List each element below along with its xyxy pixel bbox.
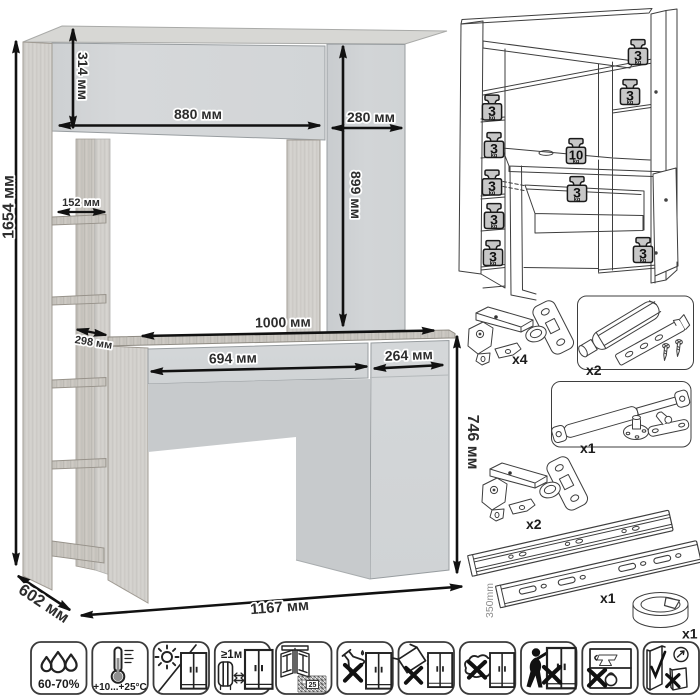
svg-text:1654 мм: 1654 мм <box>1 175 18 239</box>
svg-text:1000 мм: 1000 мм <box>255 314 311 331</box>
svg-text:kg: kg <box>640 258 646 264</box>
svg-text:x2: x2 <box>526 516 542 532</box>
svg-text:kg: kg <box>635 60 641 66</box>
svg-text:+10...+25°C: +10...+25°C <box>93 682 146 693</box>
svg-text:350mm: 350mm <box>484 583 496 618</box>
svg-text:694 мм: 694 мм <box>209 349 257 366</box>
svg-text:60-70%: 60-70% <box>38 677 80 691</box>
svg-text:746 мм: 746 мм <box>464 415 481 470</box>
svg-text:kg: kg <box>573 159 579 165</box>
svg-text:880 мм: 880 мм <box>174 106 222 122</box>
svg-text:602 мм: 602 мм <box>15 581 72 627</box>
svg-text:kg: kg <box>490 261 496 267</box>
svg-text:25: 25 <box>309 682 317 689</box>
svg-text:kg: kg <box>491 224 497 230</box>
svg-text:264 мм: 264 мм <box>385 346 433 364</box>
svg-text:x4: x4 <box>512 351 528 367</box>
svg-text:1167 мм: 1167 мм <box>250 597 310 618</box>
svg-text:280 мм: 280 мм <box>347 109 395 125</box>
svg-text:x2: x2 <box>586 362 602 378</box>
svg-text:x1: x1 <box>600 590 616 606</box>
svg-text:x1: x1 <box>682 626 698 642</box>
svg-text:kg: kg <box>574 197 580 203</box>
svg-text:314 мм: 314 мм <box>75 52 91 100</box>
svg-text:kg: kg <box>627 100 633 106</box>
svg-text:kg: kg <box>489 190 495 196</box>
svg-text:899 мм: 899 мм <box>348 171 364 219</box>
svg-text:kg: kg <box>489 115 495 121</box>
svg-text:x1: x1 <box>580 440 596 456</box>
svg-text:kg: kg <box>491 153 497 159</box>
svg-text:≥1м: ≥1м <box>221 649 242 661</box>
svg-text:152 мм: 152 мм <box>62 197 100 209</box>
